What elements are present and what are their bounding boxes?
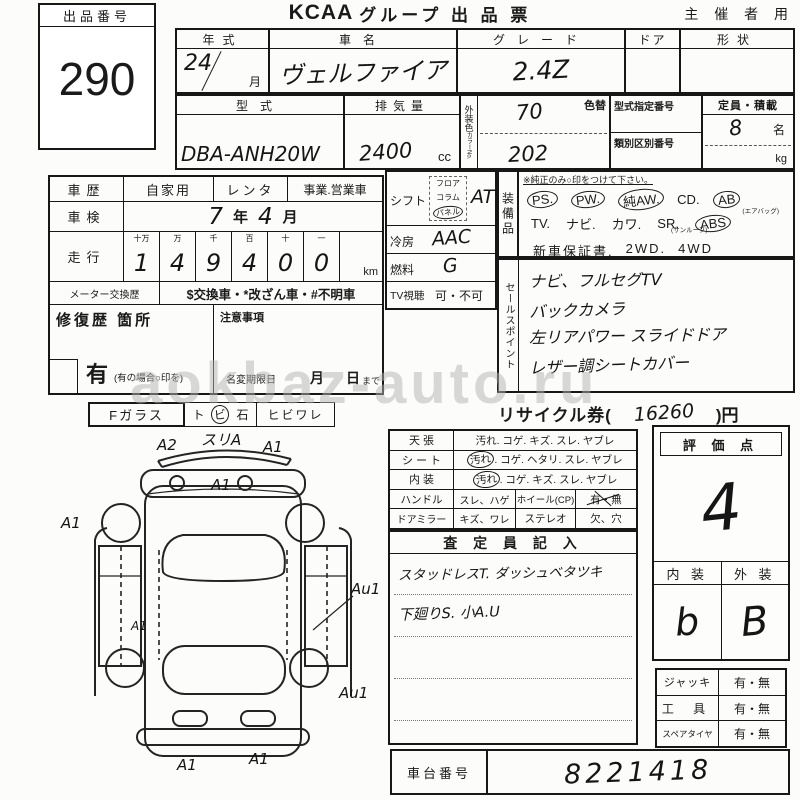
interior-label: 内 装 — [390, 470, 454, 489]
sales-points-strip: セールスポイント — [499, 260, 519, 391]
fglass-ishi: 石 — [237, 406, 249, 423]
jack-yes-no: 有・無 — [719, 670, 785, 695]
recycle-fee: リサイクル券( 16260 )円 — [498, 399, 790, 427]
seat-dirt-circled: 汚れ — [467, 450, 495, 469]
equip-navi: ナビ. — [566, 214, 596, 233]
score-value: 4 — [697, 470, 745, 548]
displacement-unit: cc — [438, 149, 451, 164]
digit-header: 十 — [268, 232, 303, 245]
damage-annotation: A1 — [176, 756, 197, 774]
auction-sheet: aokbaz-auto.ru 出品番号 290 KCAA グループ 出 品 票 … — [0, 0, 800, 800]
year-header: 年式 — [177, 30, 268, 49]
mileage-row: 走行 十万1 万4 千9 百4 十0 一0 km — [50, 232, 382, 282]
color-no-label: カラーNo. — [465, 132, 474, 159]
color-strip-label: 外装色 — [463, 105, 476, 132]
sales-point-line: ナビ、フルセグTV — [529, 264, 793, 293]
damage-annotation: A1 — [130, 619, 147, 633]
caution-label: 注意事項 — [220, 309, 264, 325]
history-commercial: 事業.営業車 — [288, 177, 382, 201]
sunroof-note: (サンルーフ) — [671, 224, 707, 234]
col-year: 年式 24 月 — [177, 30, 270, 92]
digit-value: 9 — [196, 245, 231, 281]
ac-value: AAC — [431, 226, 472, 251]
capacity-value: 8 — [728, 115, 744, 140]
score-title: 評 価 点 — [660, 432, 782, 456]
sheet-title: KCAA グループ 出 品 票 — [240, 2, 580, 24]
sheet-title-text: グループ 出 品 票 — [359, 1, 531, 26]
sales-points-box: セールスポイント ナビ、フルセグTV バックカメラ 左リアパワー スライドドア … — [497, 258, 795, 393]
col-door: ドア — [626, 30, 681, 92]
displacement-value: 2400 — [358, 138, 413, 166]
sales-point-line: 左リアパワー スライドドア — [529, 320, 793, 349]
capacity-divider — [705, 145, 791, 146]
corner-label: 主 催 者 用 — [684, 4, 794, 24]
ceiling-label: 天 張 — [390, 431, 454, 450]
inspection-year-unit: 年 — [233, 206, 248, 227]
recycle-suffix: )円 — [716, 401, 739, 426]
assessor-note-line: スタッドレスT. ダッシュベタツキ — [398, 560, 603, 584]
seat-label: シ ー ト — [390, 451, 454, 470]
equipment-strip: 装備品 — [499, 172, 519, 256]
car-diagram: A2 スリA A1 A1 A1 A1 Au1 Au1 A1 A1 — [55, 428, 385, 796]
chassis-value: 8221418 — [563, 754, 712, 790]
grade-headers: 内 装 外 装 — [654, 561, 788, 585]
chassis-box: 車台番号 8221418 — [390, 749, 790, 795]
equipment-line2: TV. ナビ. カワ. SR. ABS — [523, 214, 789, 233]
km-unit: km — [363, 266, 378, 278]
damage-annotation: A2 — [156, 436, 177, 454]
tv-label: TV視聴 — [390, 288, 424, 303]
capacity-header: 定員・積載 — [703, 96, 793, 115]
equip-pw: PW. — [570, 189, 605, 209]
name-change-label: 名変期限日 — [226, 371, 276, 386]
fglass-to: ト — [192, 406, 204, 423]
type-no-label: 型式指定番号 — [614, 98, 674, 113]
interior-dirt-circled: 汚れ — [472, 470, 500, 489]
history-private: 自家用 — [124, 177, 214, 201]
displacement-header: 排気量 — [345, 96, 459, 115]
col-exterior-color: 外装色 カラーNo. 色替 70 202 — [461, 96, 611, 168]
repair-cell: 修復歴 箇所 有 (有の場合○印を) — [50, 305, 214, 393]
digit-header: 一 — [304, 232, 339, 245]
damage-annotation: Au1 — [338, 684, 368, 702]
damage-annotation: A1 — [262, 438, 283, 456]
exterior-grade-value: B — [739, 598, 770, 646]
digit-header: 万 — [160, 232, 195, 245]
auction-number-box: 出品番号 290 — [38, 3, 156, 150]
shift-row: シフト フロア コラム パネル AT — [387, 172, 495, 226]
damage-annotation: スリA — [201, 431, 241, 449]
door-value-empty — [626, 49, 679, 92]
auction-number-label: 出品番号 — [40, 5, 154, 27]
handle-label: ハンドル — [390, 490, 454, 509]
history-label: 車歴 — [50, 177, 124, 201]
condition-row-seat: シ ー ト 汚れ . コゲ. ヘタリ. スレ. ヤブレ — [390, 450, 636, 470]
shift-option-panel: パネル — [432, 204, 463, 220]
car-name-value: ヴェルファイア — [269, 46, 456, 95]
col-name: 車名 ヴェルファイア — [270, 30, 458, 92]
drivetrain-block: シフト フロア コラム パネル AT 冷房 AAC 燃料 G TV視聴 可・不可 — [385, 170, 497, 310]
sales-point-line: レザー調シートカバー — [529, 345, 794, 378]
tools-row: 工 具 有・無 — [657, 696, 785, 722]
score-box: 評 価 点 4 内 装 外 装 b B — [652, 425, 790, 661]
exterior-grade-header: 外 装 — [722, 562, 789, 584]
mirror-label: ドアミラー — [390, 509, 454, 528]
inspection-month-value: 4 — [258, 204, 273, 230]
digit-value: 0 — [304, 245, 339, 281]
chassis-label: 車台番号 — [392, 751, 488, 793]
model-value: DBA-ANH20W — [181, 142, 320, 166]
color-change-label: 色替 — [584, 97, 606, 113]
mileage-label: 走行 — [50, 232, 124, 281]
meter-text: $交換車・*改ざん車・#不明車 — [160, 282, 382, 304]
condition-row-ceiling: 天 張 汚れ. コゲ. キズ. スレ. ヤブレ — [390, 431, 636, 450]
equip-alloy-wheels: 純AW. — [617, 187, 665, 213]
front-glass-stone: ト ビ 石 — [185, 402, 257, 427]
jack-row: ジャッキ 有・無 — [657, 670, 785, 696]
history-row: 車歴 自家用 レンタ 事業.営業車 — [50, 177, 382, 202]
assessor-title: 査 定 員 記 入 — [390, 532, 636, 554]
interior-grade-value: b — [674, 599, 701, 645]
damage-annotation: A1 — [60, 514, 81, 532]
digit-value: 4 — [232, 245, 267, 281]
condition-row-handle: ハンドル スレ、ハゲ ホイール(CP) 有・無 — [390, 489, 636, 509]
col-capacity: 定員・積載 8 名 kg — [703, 96, 793, 168]
shift-option-floor: フロア — [436, 178, 460, 189]
shift-label: シフト — [390, 192, 426, 209]
front-glass-row: Fガラス ト ビ 石 ヒビワレ — [88, 402, 335, 427]
sales-point-line: バックカメラ — [529, 289, 794, 322]
color-top-value: 70 — [515, 99, 544, 125]
ruled-line — [394, 594, 632, 595]
digit-header: 十万 — [124, 232, 159, 245]
inspection-month-unit: 月 — [283, 206, 298, 227]
fglass-bi-circled: ビ — [211, 404, 231, 424]
weight-unit: kg — [775, 153, 787, 165]
airbag-note: (エアバッグ) — [742, 205, 779, 215]
recycle-value: 16260 — [611, 398, 716, 427]
ruled-line — [394, 636, 632, 637]
equipment-box: 装備品 ※純正のみ○印をつけて下さい。 PS. PW. 純AW. CD. AB … — [497, 170, 795, 258]
tv-row: TV視聴 可・不可 — [387, 282, 495, 308]
interior-grade-header: 内 装 — [654, 562, 722, 584]
digit-header: 百 — [232, 232, 267, 245]
inspection-year-value: 7 — [208, 204, 223, 230]
kcaa-logo: KCAA — [289, 1, 354, 25]
fuel-label: 燃料 — [390, 261, 414, 278]
shift-value: AT — [471, 186, 494, 208]
tv-value: 可・不可 — [435, 287, 483, 304]
mirror-options: キズ、ワレ — [454, 509, 516, 528]
name-change-day: 日 — [346, 368, 360, 388]
assessor-note-line: 下廻りS. 小A.U — [398, 600, 501, 625]
shift-options-box: フロア コラム パネル — [429, 176, 467, 221]
color-bottom-value: 202 — [507, 141, 548, 167]
handle-options: スレ、ハゲ — [454, 490, 516, 509]
col-displacement: 排気量 2400 cc — [345, 96, 461, 168]
color-strip: 外装色 カラーNo. — [461, 96, 478, 168]
inspection-label: 車検 — [50, 202, 124, 231]
repair-note-row: 修復歴 箇所 有 (有の場合○印を) 注意事項 名変期限日 月 日 まで — [50, 305, 382, 393]
tools-yes-no: 有・無 — [719, 696, 785, 721]
wheel-cp-label: ホイール(CP) — [516, 490, 576, 509]
sales-points-content: ナビ、フルセグTV バックカメラ 左リアパワー スライドドア レザー調シートカバ… — [519, 260, 793, 391]
grade-values: b B — [654, 585, 788, 659]
fuel-row: 燃料 G — [387, 254, 495, 282]
equipment-note: ※純正のみ○印をつけて下さい。 — [523, 173, 789, 186]
front-glass-crack: ヒビワレ — [257, 402, 335, 427]
caution-cell: 注意事項 名変期限日 月 日 まで — [214, 305, 382, 393]
capacity-unit: 名 — [773, 121, 785, 138]
ruled-line — [394, 678, 632, 679]
damage-annotation: Au1 — [350, 580, 380, 598]
wheel-cp-value: 有・無 — [576, 490, 636, 509]
shift-option-column: コラム — [436, 192, 460, 203]
digit-header: 千 — [196, 232, 231, 245]
ceiling-options: 汚れ. コゲ. キズ. スレ. ヤブレ — [454, 431, 636, 450]
col-model: 型式 DBA-ANH20W — [177, 96, 345, 168]
equip-tv: TV. — [531, 216, 550, 231]
grade-value: 2.4Z — [457, 45, 625, 97]
auction-number-value: 290 — [40, 27, 154, 148]
interior-options: . コゲ. キズ. スレ. ヤブレ — [500, 472, 618, 487]
condition-row-mirror: ドアミラー キズ、ワレ ステレオ 欠、穴 — [390, 508, 636, 528]
score-value-area: 4 — [654, 457, 788, 561]
digit-value: 1 — [124, 245, 159, 281]
col-type-numbers: 型式指定番号 類別区別番号 — [611, 96, 703, 168]
meter-row: メーター交換歴 $交換車・*改ざん車・#不明車 — [50, 282, 382, 305]
model-header: 型式 — [177, 96, 343, 115]
inspection-row: 車検 7 年 4 月 — [50, 202, 382, 232]
shape-header: 形状 — [681, 30, 793, 49]
seat-options: . コゲ. ヘタリ. スレ. ヤブレ — [494, 452, 622, 467]
equip-airbag: AB — [712, 190, 741, 210]
condition-table: 天 張 汚れ. コゲ. キズ. スレ. ヤブレ シ ー ト 汚れ . コゲ. ヘ… — [388, 429, 638, 530]
shape-value-empty — [681, 49, 793, 92]
condition-row-interior: 内 装 汚れ . コゲ. キズ. スレ. ヤブレ — [390, 469, 636, 489]
spare-tire-row: スペアタイヤ 有・無 — [657, 721, 785, 746]
damage-annotation: A1 — [210, 476, 231, 494]
door-header: ドア — [626, 30, 679, 49]
recycle-label: リサイクル券( — [498, 401, 612, 426]
meter-label: メーター交換歴 — [50, 282, 160, 304]
equip-leather: カワ. — [612, 214, 642, 233]
ruled-line — [394, 720, 632, 721]
digit-value: 4 — [160, 245, 195, 281]
vehicle-id-table: 年式 24 月 車名 ヴェルファイア グレード 2.4Z ドア 形状 — [175, 28, 795, 94]
col-grade: グレード 2.4Z — [458, 30, 626, 92]
front-glass-label: Fガラス — [88, 402, 185, 427]
jack-label: ジャッキ — [657, 670, 719, 695]
digit-value: 0 — [268, 245, 303, 281]
assessor-content: スタッドレスT. ダッシュベタツキ 下廻りS. 小A.U — [390, 554, 636, 743]
stereo-label: ステレオ — [516, 509, 576, 528]
equip-ps: PS. — [526, 189, 559, 209]
year-month-unit: 月 — [249, 73, 261, 90]
tools-label: 工 具 — [657, 696, 719, 721]
fuel-value: G — [442, 254, 459, 277]
damage-annotation: A1 — [248, 750, 269, 768]
equip-cd: CD. — [677, 192, 699, 207]
repair-note: (有の場合○印を) — [114, 370, 183, 384]
ac-row: 冷房 AAC — [387, 226, 495, 254]
repair-label: 修復歴 箇所 — [56, 309, 153, 330]
name-change-month: 月 — [310, 368, 324, 388]
repair-step-line — [50, 359, 78, 393]
spare-tire-label: スペアタイヤ — [657, 721, 719, 746]
accessories-table: ジャッキ 有・無 工 具 有・無 スペアタイヤ 有・無 — [655, 668, 787, 748]
col-shape: 形状 — [681, 30, 793, 92]
equipment-content: ※純正のみ○印をつけて下さい。 PS. PW. 純AW. CD. AB TV. … — [519, 172, 793, 256]
color-divider — [480, 133, 607, 134]
ac-label: 冷房 — [390, 233, 414, 250]
spec-table: 型式 DBA-ANH20W 排気量 2400 cc 外装色 カラーNo. 色替 … — [175, 94, 795, 170]
equipment-strip-label: 装備品 — [500, 192, 517, 237]
history-table: 車歴 自家用 レンタ 事業.営業車 車検 7 年 4 月 走行 十万1 万4 千… — [48, 175, 384, 395]
stereo-missing: 欠、穴 — [576, 509, 636, 528]
year-value: 24 — [184, 51, 212, 76]
name-change-day-suffix: まで — [362, 374, 380, 387]
assessor-box: 査 定 員 記 入 スタッドレスT. ダッシュベタツキ 下廻りS. 小A.U — [388, 530, 638, 745]
history-rental: レンタ — [214, 177, 288, 201]
sales-points-strip-label: セールスポイント — [501, 282, 516, 370]
class-no-label: 類別区別番号 — [614, 135, 674, 150]
spare-tire-yes-no: 有・無 — [719, 721, 785, 746]
repair-yes: 有 — [86, 357, 108, 389]
